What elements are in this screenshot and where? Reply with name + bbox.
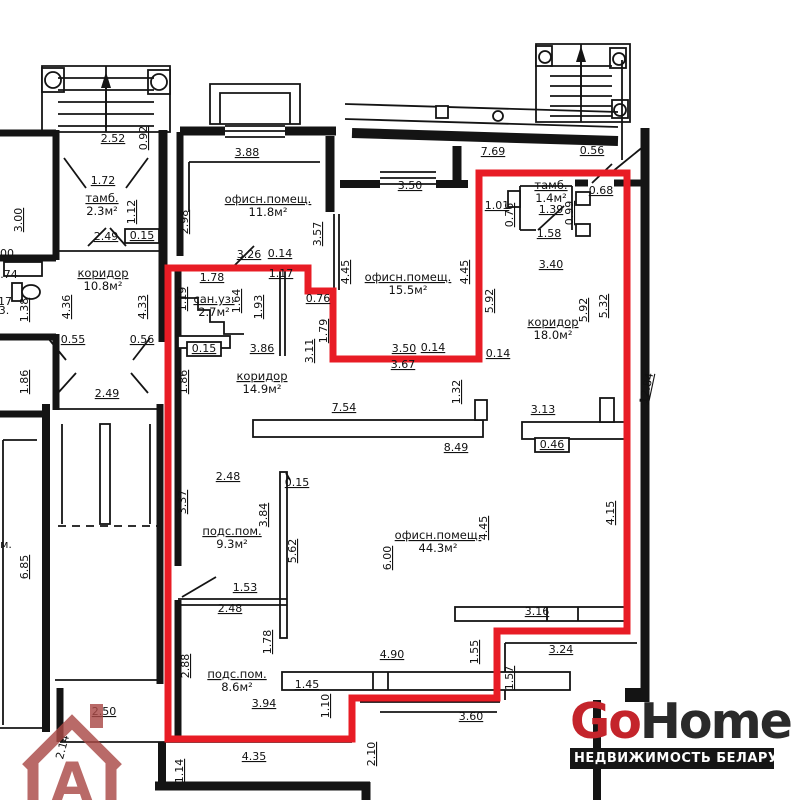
room-name: офисн.помещ. [395, 528, 482, 542]
logo-go: Go [570, 693, 640, 750]
dimension-label: 0.15 [130, 229, 155, 242]
room-name: тамб. [534, 178, 567, 192]
dimension-label: м. [0, 538, 12, 551]
room-area: 8.6м² [221, 680, 253, 694]
dimension-label: 2.88 [179, 654, 192, 679]
room-area: 11.8м² [249, 205, 288, 219]
column-circle [613, 53, 625, 65]
window [225, 126, 285, 137]
dimension-label: 1.58 [537, 227, 562, 240]
dimension-label: 3.40 [539, 258, 564, 271]
dimension-label: 0.76 [306, 292, 331, 305]
room-area: 15.5м² [389, 283, 428, 297]
dimension-label: 4.45 [458, 260, 471, 285]
watermark-house-icon: A [26, 704, 118, 800]
dimension-label: 1.55 [468, 640, 481, 665]
dimension-label: 3.60 [459, 710, 484, 723]
dimension-label: 1.14 [173, 759, 186, 784]
room-name: коридор [236, 369, 287, 383]
room-name: коридор [77, 266, 128, 280]
gohome-tagline: НЕДВИЖИМОСТЬ БЕЛАРУСИ [570, 748, 774, 769]
dimension-label: 2.98 [178, 210, 191, 235]
dimension-label: 0.15 [285, 476, 310, 489]
floor-plan-drawing: 2.520.921.721.122.490.153.003.882.983.57… [0, 0, 808, 800]
dimension-label: 7.54 [332, 401, 357, 414]
room-name: коридор [527, 315, 578, 329]
dimension-label: 2.10 [365, 742, 378, 767]
dimension-label: 5.92 [577, 298, 590, 323]
dimension-label: 0.56 [130, 333, 155, 346]
dimension-label: 3.00 [12, 208, 25, 233]
dimension-label: 2.49 [95, 387, 120, 400]
room-area: 14.9м² [243, 382, 282, 396]
dimension-label: 5.92 [483, 289, 496, 314]
dimension-label: 2.48 [218, 602, 243, 615]
dimension-label: 6.00 [381, 546, 394, 571]
room-area: 2.7м² [198, 305, 230, 319]
room-area: 9.3м² [216, 537, 248, 551]
column-circle [614, 104, 626, 116]
dimension-label: 7.69 [481, 145, 506, 158]
stair-direction-arrow [101, 72, 111, 88]
dimension-label: 1.53 [233, 581, 258, 594]
dimension-label: 1.19 [176, 287, 189, 312]
logo-home: Home [640, 693, 791, 750]
dimension-label: 4.33 [136, 295, 149, 320]
balcony [210, 84, 300, 124]
dimension-label: 6.85 [18, 555, 31, 580]
dimension-label: 1.10 [319, 694, 332, 719]
dimension-label: 3.16 [525, 605, 550, 618]
room-area: 2.3м² [86, 204, 118, 218]
dimension-label: 2.52 [101, 132, 126, 145]
dimension-label: 1.78 [261, 630, 274, 655]
dimension-label: 3.11 [303, 339, 316, 364]
dimension-label: 4.90 [380, 648, 405, 661]
dimension-label: 1.45 [295, 678, 320, 691]
stair-direction-arrow [576, 46, 586, 62]
dimension-label: 3.13 [531, 403, 556, 416]
room-name: подс.пом. [202, 524, 261, 538]
dimension-label: 3.94 [252, 697, 277, 710]
room-name: сан.уз. [193, 292, 234, 306]
dimension-label: 1.93 [252, 295, 265, 320]
dimension-label: 4.15 [604, 501, 617, 526]
dimension-label: 1.12 [125, 200, 138, 225]
dimension-label: 4.45 [339, 260, 352, 285]
dimension-label: 1.86 [18, 370, 31, 395]
room-name: тамб. [85, 191, 118, 205]
dimension-label: 2.49 [94, 230, 119, 243]
dimension-label: 1.32 [450, 380, 463, 405]
dimension-label: 0.14 [486, 347, 511, 360]
dimension-label: 3.37 [176, 490, 189, 515]
dimension-label: 3.67 [391, 358, 416, 371]
dimension-label: 1.38 [18, 298, 31, 323]
dimension-label: 3.50 [398, 179, 423, 192]
dimension-label: 8.49 [444, 441, 469, 454]
dimension-label: 3.50 [392, 342, 417, 355]
dimension-label: 12.84 [637, 372, 656, 406]
column-circle [45, 72, 61, 88]
room-area: 44.3м² [419, 541, 458, 555]
floor-plan-canvas: 2.520.921.721.122.490.153.003.882.983.57… [0, 0, 808, 800]
dimension-label: 1.17 [269, 267, 294, 280]
dimension-label: 4.36 [60, 295, 73, 320]
dimension-label: 4.35 [242, 750, 267, 763]
dimension-label: 3.26 [237, 248, 262, 261]
dimension-label: .74 [0, 268, 18, 281]
dimension-label: 1.57 [503, 666, 516, 691]
dimension-label: 0.56 [580, 144, 605, 157]
dimension-label: 2.48 [216, 470, 241, 483]
room-name: подс.пом. [207, 667, 266, 681]
dimension-label: 0.76 [503, 203, 516, 228]
dimension-label: 1.78 [200, 271, 225, 284]
room-name: офисн.помещ. [225, 192, 312, 206]
dimension-label: 0.14 [421, 341, 446, 354]
gohome-logo-text: GoHome [570, 696, 774, 747]
dimension-label: 0.92 [137, 126, 150, 151]
dimension-label: 1.72 [91, 174, 116, 187]
dimension-label: 5.32 [597, 294, 610, 319]
dimension-label: 3. [0, 304, 9, 317]
dimension-label: 3.24 [549, 643, 574, 656]
dimension-label: 3.88 [235, 146, 260, 159]
room-name: офисн.помещ. [365, 270, 452, 284]
dimension-label: 00 [0, 247, 14, 260]
dimension-label: 3.86 [250, 342, 275, 355]
pier-wall [253, 420, 483, 437]
pier-wall [522, 422, 625, 439]
toilet-bowl [22, 285, 40, 299]
dimension-label: 0.68 [589, 184, 614, 197]
dimension-label: 5.62 [286, 539, 299, 564]
room-area: 1.4м² [535, 191, 567, 205]
room-area: 18.0м² [534, 328, 573, 342]
dimension-label: 0.14 [268, 247, 293, 260]
room-area: 10.8м² [84, 279, 123, 293]
dimension-label: 1.86 [177, 370, 190, 395]
watermark-letter: A [51, 751, 93, 800]
dimension-label: 0.55 [61, 333, 86, 346]
column-circle [151, 74, 167, 90]
dimension-label: 3.57 [311, 222, 324, 247]
column-circle [539, 51, 551, 63]
gohome-logo: GoHome НЕДВИЖИМОСТЬ БЕЛАРУСИ [570, 696, 774, 769]
dimension-label: 1.79 [317, 319, 330, 344]
dimension-label: 0.15 [192, 342, 217, 355]
dimension-label: 0.46 [540, 438, 565, 451]
